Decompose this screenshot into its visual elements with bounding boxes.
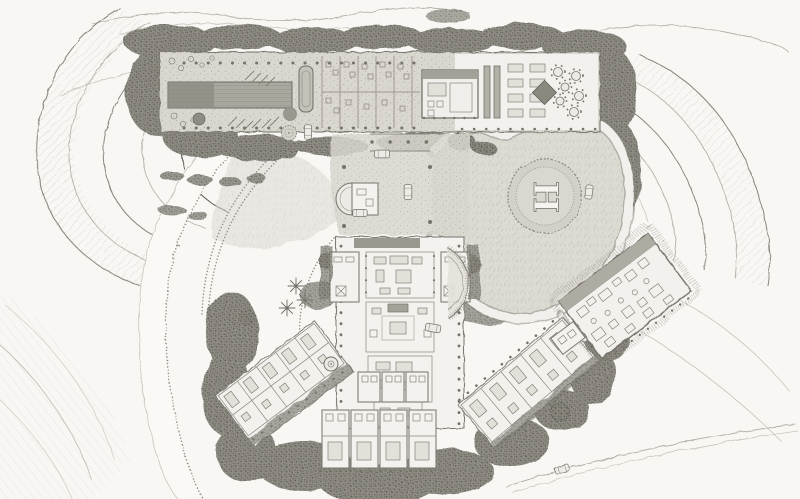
upper-garden-terrace (160, 52, 600, 139)
helipad-marking: H (525, 181, 565, 213)
corner-tree (551, 403, 569, 421)
swimming-pool (168, 82, 292, 108)
car-on-loop-road (585, 185, 594, 200)
round-tree (282, 126, 297, 141)
car-in-court-1 (374, 150, 389, 158)
garden-gazebo (324, 357, 338, 371)
car-in-court-2 (353, 209, 367, 216)
lap-pool (299, 66, 313, 112)
upper-room-row (358, 372, 428, 402)
garden-pavilion (422, 70, 478, 118)
site-plan-canvas: H (0, 0, 800, 499)
car-in-court-3 (404, 184, 412, 199)
helipad: H (508, 159, 582, 233)
car-by-terrace (304, 125, 311, 139)
side-room-west (330, 252, 359, 302)
scanned-site-plan-drawing: H (0, 0, 800, 499)
